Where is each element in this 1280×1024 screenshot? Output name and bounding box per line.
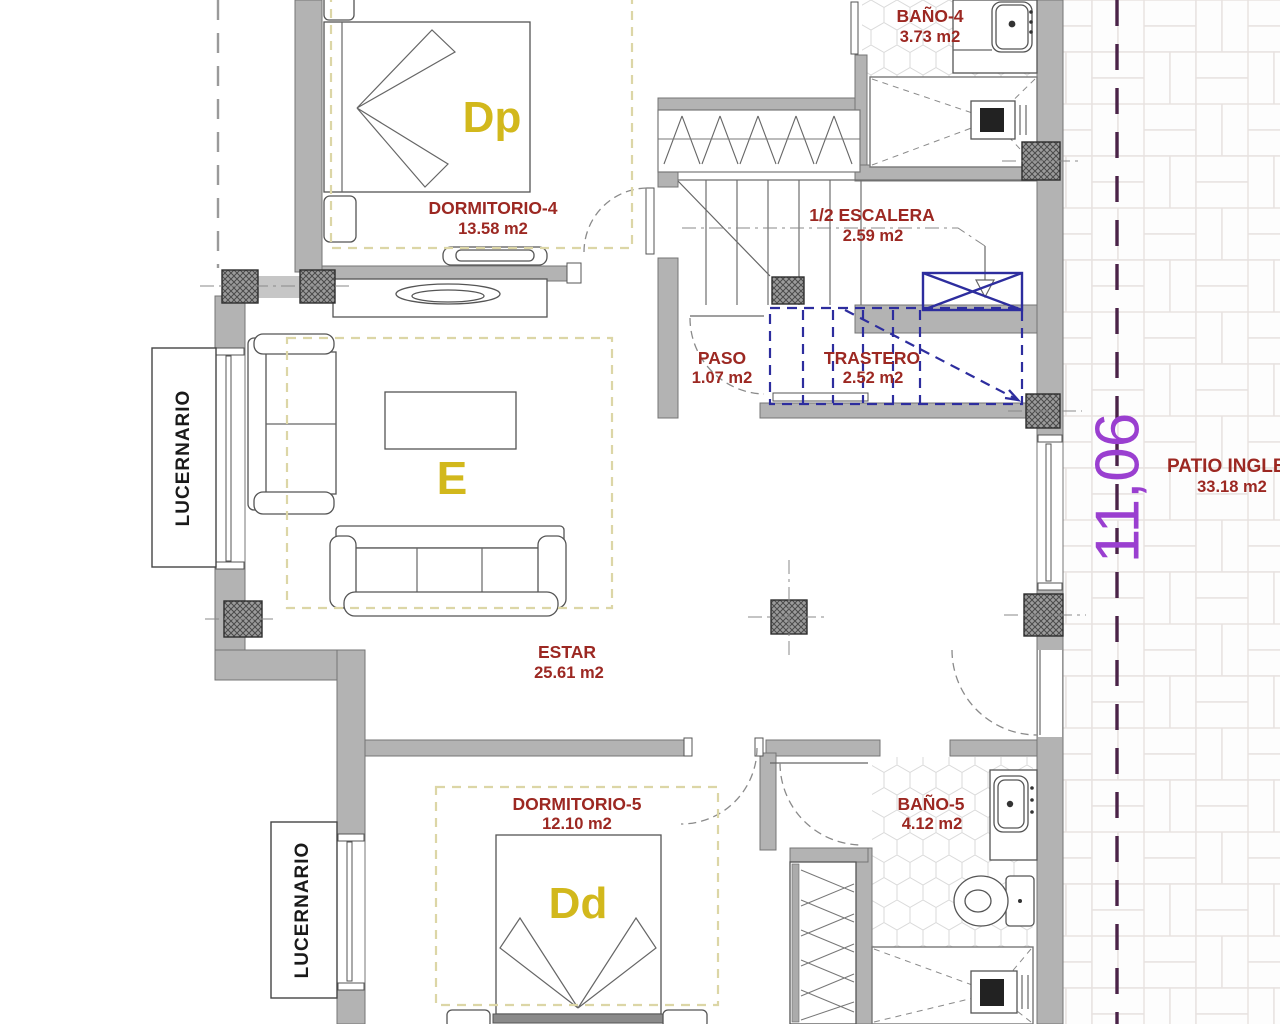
paso-label: PASO — [698, 348, 746, 368]
bano4-door-leaf — [851, 2, 858, 54]
window-lucernario-bottom — [337, 834, 365, 990]
bano5-vanity-sink — [990, 770, 1037, 860]
bano5-label: BAÑO-5 — [897, 793, 964, 814]
nightstand — [324, 196, 356, 242]
bed-footboard — [493, 1014, 663, 1023]
floor-plan: BAÑO-4 3.73 m2 Dp DORMITORIO-4 13.58 m2 … — [0, 0, 1280, 1024]
patio-area: 33.18 m2 — [1197, 478, 1267, 496]
dormitorio4-area: 13.58 m2 — [458, 220, 528, 238]
window-patio-wall — [1037, 435, 1063, 590]
hall-patio-door-arc — [952, 650, 1037, 735]
radiator — [443, 247, 547, 265]
bano4-shower — [870, 77, 1037, 167]
dormitorio4-door-leaf — [646, 188, 654, 254]
stair-bottom-step — [773, 393, 868, 401]
stairs-overhead-hatch — [658, 110, 860, 172]
dormitorio5-tag: Dd — [549, 879, 608, 928]
wardrobe — [790, 862, 856, 1024]
lucernario-bottom-label: LUCERNARIO — [292, 842, 313, 979]
bano4-area: 3.73 m2 — [900, 28, 961, 46]
toilet — [954, 876, 1034, 926]
stair-walkline — [682, 228, 985, 246]
dormitorio4-tag: Dp — [463, 93, 522, 142]
dormitorio5-label: DORMITORIO-5 — [513, 794, 642, 814]
escalera-label: 1/2 ESCALERA — [809, 205, 935, 225]
patio-width-dimension: 11,06 — [1083, 413, 1152, 564]
lucernario-top-label: LUCERNARIO — [173, 390, 194, 527]
dormitorio4-door-arc — [584, 188, 648, 252]
bano4-label: BAÑO-4 — [896, 5, 963, 26]
estar-furniture — [248, 279, 566, 616]
estar-area: 25.61 m2 — [534, 664, 604, 682]
trastero-area: 2.52 m2 — [843, 369, 904, 387]
sofa-three-seater — [330, 526, 566, 616]
nightstand — [324, 0, 354, 20]
paso-area: 1.07 m2 — [692, 369, 753, 387]
window-lucernario-top — [215, 348, 245, 569]
sideboard — [333, 279, 547, 317]
dormitorio5-area: 12.10 m2 — [542, 815, 612, 833]
dormitorio5-furniture — [447, 835, 707, 1024]
escalera-area: 2.59 m2 — [843, 227, 904, 245]
trastero-label: TRASTERO — [824, 348, 920, 368]
bano5-door-arc — [780, 763, 862, 845]
bano5-area: 4.12 m2 — [902, 815, 963, 833]
estar-tag: E — [437, 452, 468, 504]
coffee-table — [385, 392, 516, 449]
bano4-vanity-sink — [953, 0, 1037, 73]
estar-label: ESTAR — [538, 642, 596, 662]
dormitorio4-label: DORMITORIO-4 — [429, 198, 558, 218]
nightstand — [663, 1010, 707, 1024]
bano5-shower — [872, 947, 1033, 1024]
patio-label: PATIO INGLE — [1167, 456, 1280, 477]
sofa-two-seater — [248, 334, 336, 514]
nightstand — [447, 1010, 490, 1024]
